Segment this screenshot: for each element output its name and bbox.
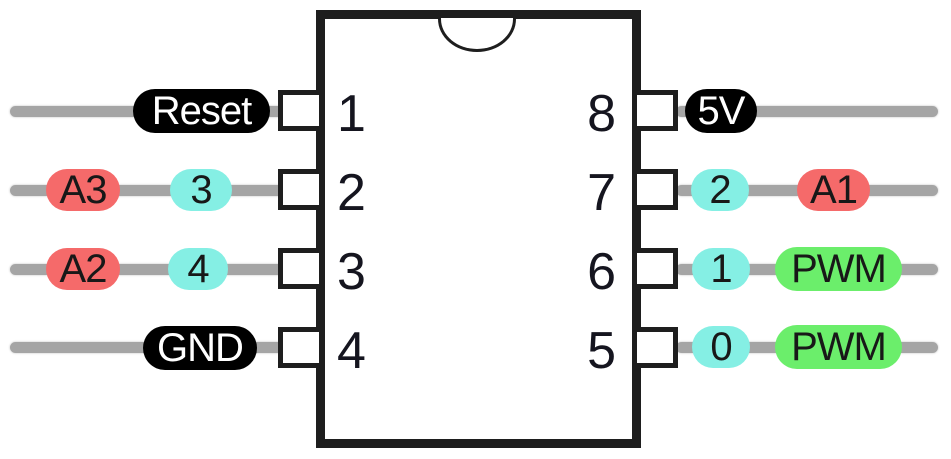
pin5-pad [632, 327, 678, 368]
pin2-digital-label: 3 [170, 169, 232, 211]
pin-number-8: 8 [556, 88, 616, 140]
pin7-analog-label: A1 [797, 169, 870, 211]
pin1-reset-label: Reset [133, 89, 270, 133]
pin2-analog-label: A3 [46, 169, 120, 211]
pin-number-1: 1 [337, 88, 397, 140]
pin8-power-label: 5V [685, 89, 757, 133]
pin4-ground-label: GND [143, 326, 257, 370]
pin6-digital-label: 1 [692, 248, 750, 290]
pin-number-6: 6 [556, 246, 616, 298]
pin7-digital-label: 2 [691, 169, 749, 211]
pin5-pwm-label: PWM [775, 325, 902, 369]
pin7-pad [632, 169, 678, 210]
pin8-pad [632, 90, 678, 131]
pin3-digital-label: 4 [168, 248, 228, 290]
pin3-analog-label: A2 [46, 248, 120, 290]
pin-number-3: 3 [337, 246, 397, 298]
pin2-pad [278, 169, 324, 210]
pin6-pad [632, 248, 678, 289]
pin5-digital-label: 0 [692, 326, 750, 368]
pin3-pad [278, 248, 324, 289]
pin-number-2: 2 [337, 167, 397, 219]
pin6-pwm-label: PWM [775, 247, 902, 291]
ic-pinout-diagram: 1 2 3 4 8 7 6 5 Reset A3 3 A2 4 GND 5V 2… [0, 0, 951, 459]
pin-number-4: 4 [337, 325, 397, 377]
pin-number-5: 5 [556, 325, 616, 377]
ic-body [316, 10, 641, 448]
pin-number-7: 7 [556, 167, 616, 219]
pin4-pad [278, 327, 324, 368]
pin1-pad [278, 90, 324, 131]
